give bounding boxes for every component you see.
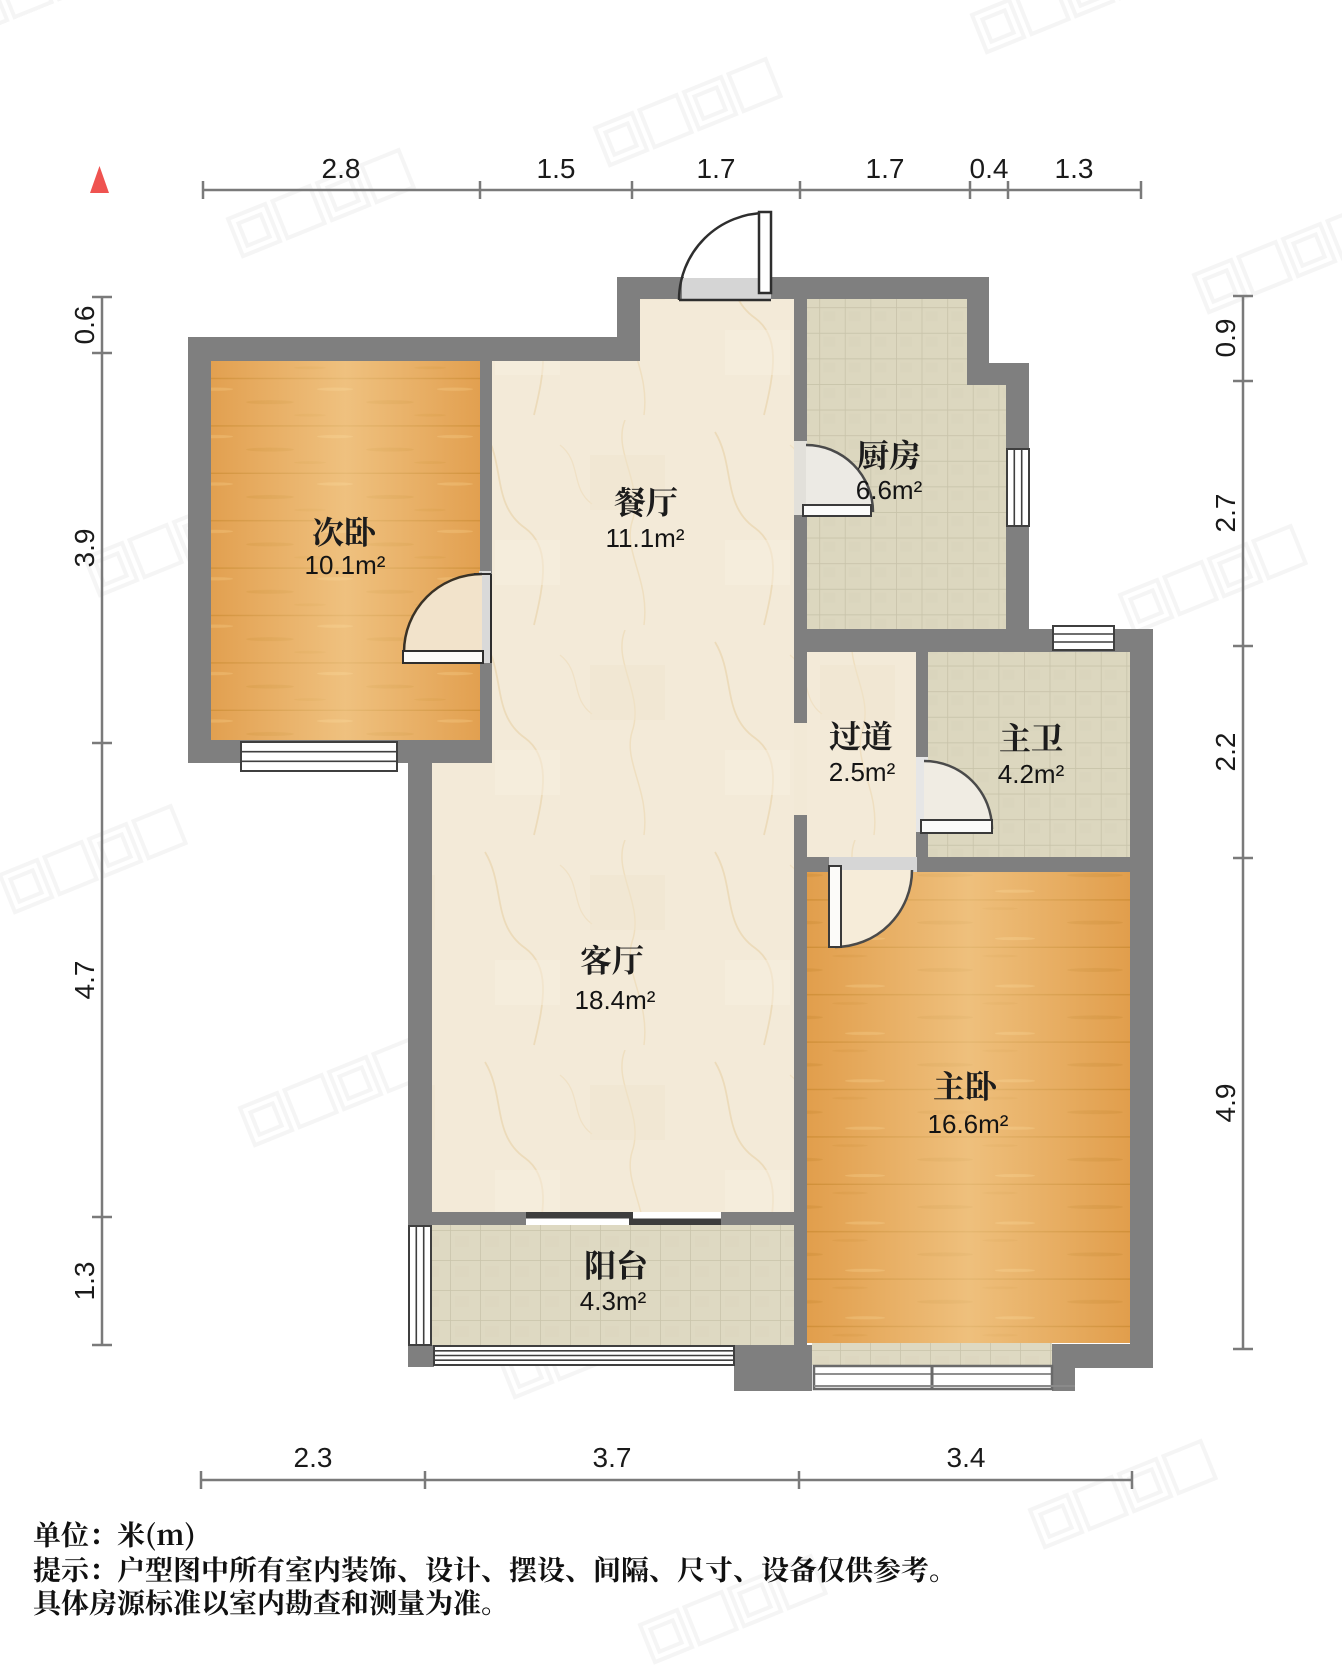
svg-text:2.7: 2.7 (1210, 494, 1241, 533)
svg-text:4.3m²: 4.3m² (580, 1286, 647, 1316)
svg-text:2.8: 2.8 (322, 153, 361, 184)
svg-text:2.5m²: 2.5m² (829, 757, 896, 787)
svg-text:1.3: 1.3 (69, 1262, 100, 1301)
svg-text:2.2: 2.2 (1210, 733, 1241, 772)
svg-text:3.9: 3.9 (69, 529, 100, 568)
svg-text:1.7: 1.7 (697, 153, 736, 184)
svg-text:6.6m²: 6.6m² (856, 475, 923, 505)
svg-text:1.5: 1.5 (537, 153, 576, 184)
svg-text:0.4: 0.4 (970, 153, 1009, 184)
svg-text:4.2m²: 4.2m² (998, 759, 1065, 789)
svg-text:0.9: 0.9 (1210, 319, 1241, 358)
svg-text:10.1m²: 10.1m² (305, 550, 386, 580)
svg-text:4.7: 4.7 (69, 961, 100, 1000)
svg-text:1.3: 1.3 (1055, 153, 1094, 184)
svg-text:0.6: 0.6 (69, 306, 100, 345)
svg-text:3.4: 3.4 (947, 1442, 986, 1473)
svg-text:3.7: 3.7 (593, 1442, 632, 1473)
svg-text:2.3: 2.3 (294, 1442, 333, 1473)
svg-text:11.1m²: 11.1m² (606, 523, 685, 553)
svg-text:18.4m²: 18.4m² (575, 985, 656, 1015)
svg-text:1.7: 1.7 (866, 153, 905, 184)
svg-text:16.6m²: 16.6m² (928, 1109, 1009, 1139)
svg-text:4.9: 4.9 (1210, 1084, 1241, 1123)
